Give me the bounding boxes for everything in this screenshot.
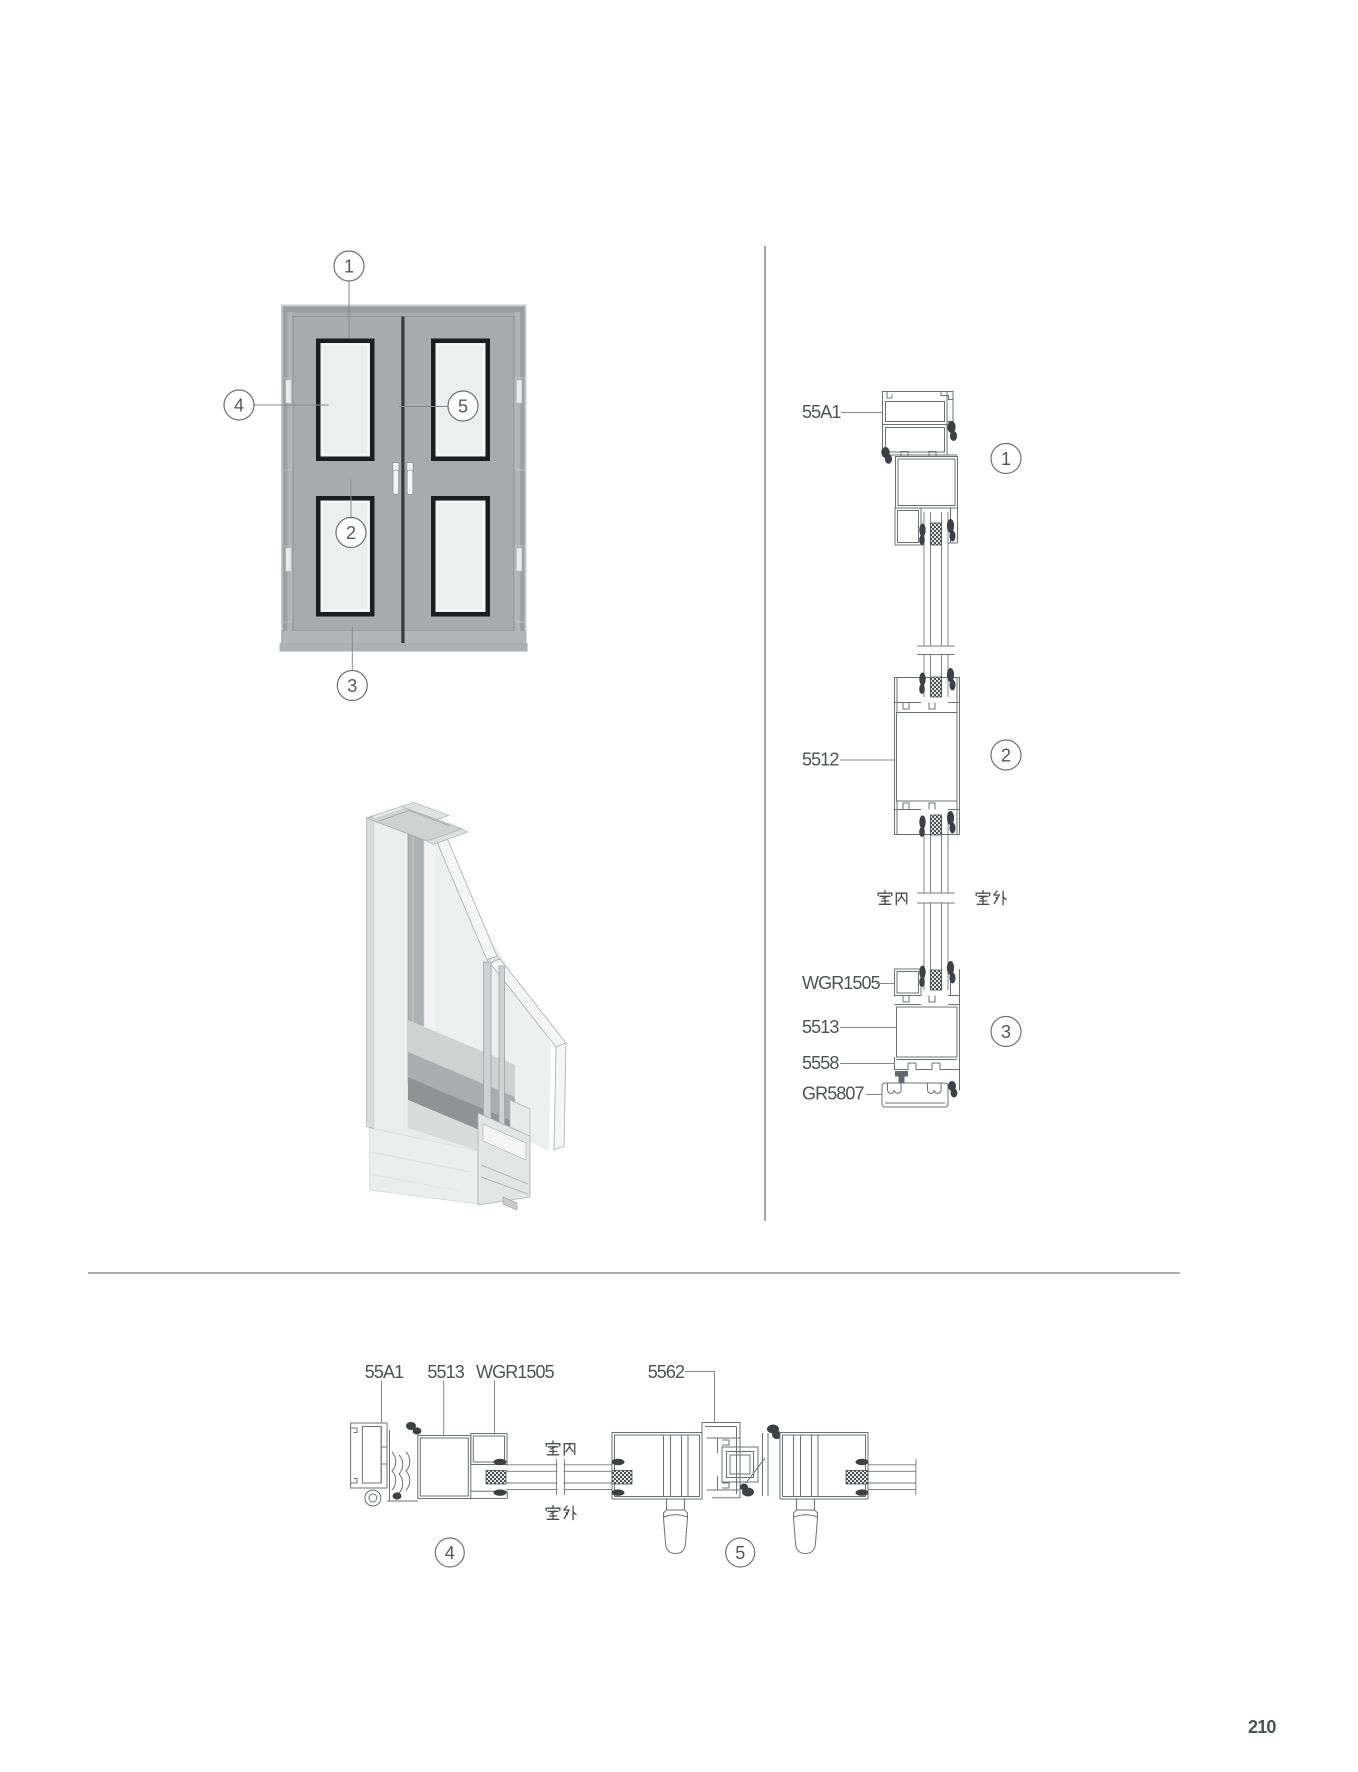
svg-text:2: 2 bbox=[346, 523, 356, 543]
svg-text:1: 1 bbox=[1001, 449, 1011, 469]
svg-text:5513: 5513 bbox=[427, 1362, 464, 1382]
svg-text:WGR1505: WGR1505 bbox=[476, 1362, 555, 1382]
svg-text:55A1: 55A1 bbox=[365, 1362, 404, 1382]
svg-text:4: 4 bbox=[445, 1543, 455, 1563]
svg-text:3: 3 bbox=[1001, 1022, 1011, 1042]
svg-text:2: 2 bbox=[1001, 746, 1011, 766]
svg-text:5513: 5513 bbox=[802, 1017, 839, 1037]
svg-text:GR5807: GR5807 bbox=[802, 1084, 865, 1104]
svg-text:3: 3 bbox=[347, 676, 357, 696]
svg-text:WGR1505: WGR1505 bbox=[802, 973, 881, 993]
svg-text:4: 4 bbox=[234, 396, 244, 416]
svg-text:210: 210 bbox=[1248, 1717, 1276, 1737]
svg-text:5: 5 bbox=[458, 397, 468, 417]
svg-text:55A1: 55A1 bbox=[802, 402, 841, 422]
svg-text:5: 5 bbox=[735, 1543, 745, 1563]
svg-text:1: 1 bbox=[344, 257, 354, 277]
svg-text:5512: 5512 bbox=[802, 750, 839, 770]
svg-text:5558: 5558 bbox=[802, 1053, 839, 1073]
svg-text:5562: 5562 bbox=[648, 1362, 685, 1382]
